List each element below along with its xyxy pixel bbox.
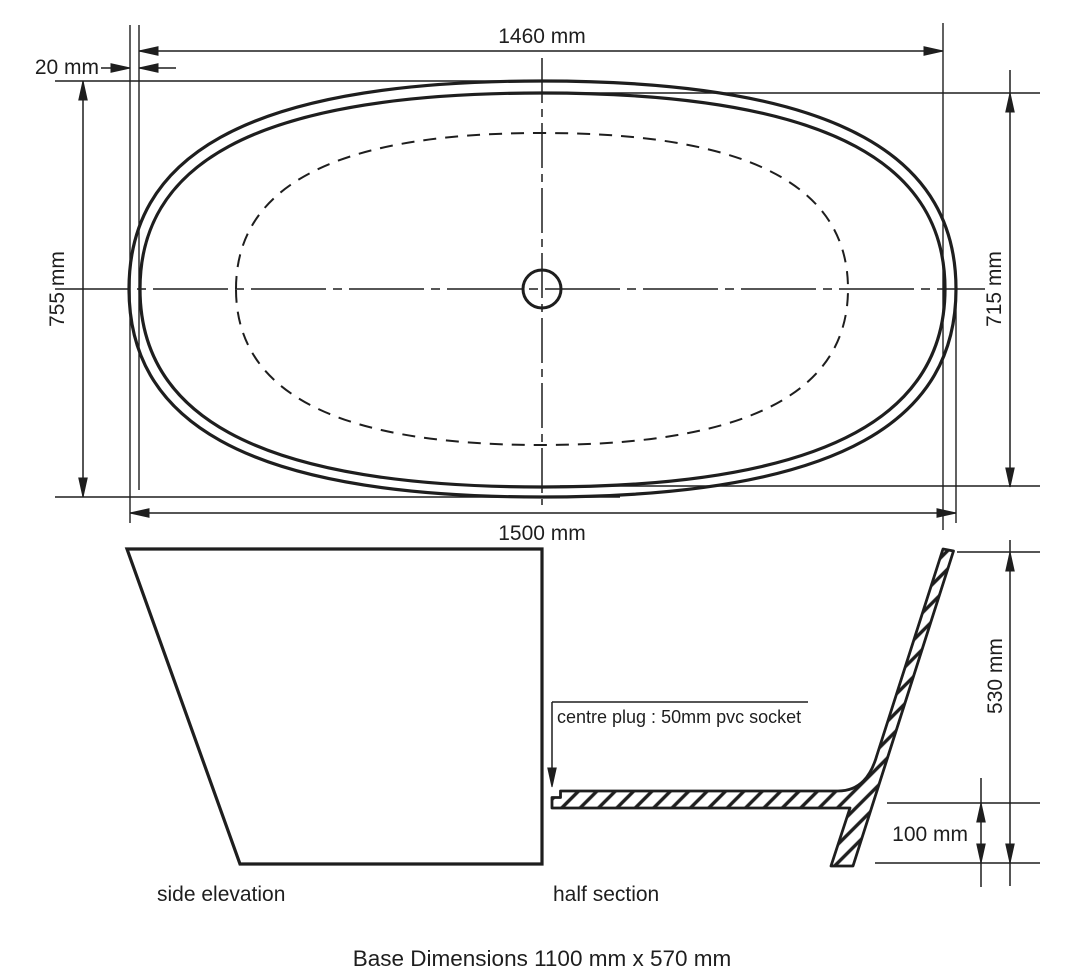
dim-rim-offset: 20 mm: [35, 56, 176, 79]
side-elevation: side elevation: [127, 549, 542, 906]
arrow-left-icon: [139, 64, 158, 72]
half-section-label: half section: [553, 883, 659, 906]
plug-note: centre plug : 50mm pvc socket: [557, 707, 801, 727]
arrow-up-icon: [1006, 93, 1014, 112]
arrow-up-icon: [977, 803, 985, 822]
arrow-up-icon: [1006, 552, 1014, 571]
half-section: centre plug : 50mm pvc socket half secti…: [548, 549, 954, 906]
dim-inner-width: 715 mm: [983, 70, 1014, 487]
arrow-left-icon: [130, 509, 149, 517]
arrow-left-icon: [139, 47, 158, 55]
arrow-right-icon: [924, 47, 943, 55]
arrow-right-icon: [111, 64, 130, 72]
arrow-down-icon: [548, 768, 556, 787]
arrow-down-icon: [1006, 844, 1014, 863]
dim-rim-offset-label: 20 mm: [35, 56, 99, 79]
arrow-down-icon: [977, 844, 985, 863]
arrow-right-icon: [937, 509, 956, 517]
arrow-up-icon: [79, 81, 87, 100]
dim-outer-length-label: 1500 mm: [498, 522, 586, 545]
bath-technical-drawing: 1460 mm 20 mm 755 mm 715 mm: [0, 0, 1080, 978]
dim-height: 530 mm: [984, 540, 1014, 886]
dim-outer-length: 1500 mm: [130, 509, 956, 545]
arrow-down-icon: [79, 478, 87, 497]
plan-dimensions: 1460 mm 20 mm 755 mm 715 mm: [35, 23, 1040, 545]
plan-view: [55, 58, 985, 505]
dim-outer-width-label: 755 mm: [46, 251, 69, 327]
dim-base-height-label: 100 mm: [892, 823, 968, 846]
extension-lines: [55, 23, 1040, 530]
drawing-canvas: 1460 mm 20 mm 755 mm 715 mm: [0, 0, 1080, 978]
side-elevation-outline: [127, 549, 542, 864]
dim-inner-length-label: 1460 mm: [498, 25, 586, 48]
side-elevation-label: side elevation: [157, 883, 285, 906]
dim-inner-width-label: 715 mm: [983, 251, 1006, 327]
arrow-down-icon: [1006, 468, 1014, 487]
base-dimensions-note: Base Dimensions 1100 mm x 570 mm: [353, 946, 731, 971]
dim-height-label: 530 mm: [984, 638, 1007, 714]
dim-base-height: 100 mm: [892, 778, 985, 887]
dim-inner-length: 1460 mm: [139, 25, 943, 55]
